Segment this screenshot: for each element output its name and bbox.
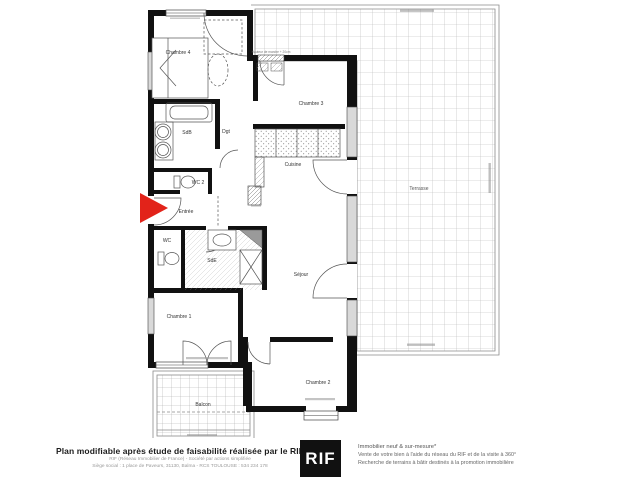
footer-company-line: RIF (Réseau Immobilier de France) - Soci… <box>30 457 330 463</box>
footer-left-block: Plan modifiable après étude de faisabili… <box>30 446 330 470</box>
room-label-chambre2: Chambre 2 <box>306 380 331 386</box>
room-label-sejour: Séjour <box>294 272 309 278</box>
room-label-sde: SdE <box>207 258 217 264</box>
rif-logo-text: RIF <box>305 449 335 469</box>
footer-service-line1: Immobilier neuf & sur-mesure* <box>358 443 588 451</box>
room-label-entree: Entrée <box>179 209 194 215</box>
room-label-cuisine: Cuisine <box>285 162 302 168</box>
room-label-wc: WC <box>163 238 172 244</box>
room-label-chambre4: Chambre 4 <box>166 50 191 56</box>
room-label-sdb: SdB <box>182 130 192 136</box>
balcony-dimension-smudge <box>187 434 217 436</box>
footer: Plan modifiable après étude de faisabili… <box>0 438 640 480</box>
room-label-chambre3: Chambre 3 <box>299 101 324 107</box>
footer-tagline: Plan modifiable après étude de faisabili… <box>30 446 330 456</box>
step-height-note: Hauteur de marche + 20cm <box>252 50 291 54</box>
footer-address-line: Siège social : 1 place de Paveurs, 31130… <box>30 464 330 470</box>
room-label-wc2: WC 2 <box>192 180 205 186</box>
floor-plan: Terrasse Balcon <box>0 0 640 440</box>
footer-service-line2: Vente de votre bien à l'aide du réseau d… <box>358 451 588 459</box>
footer-right-block: Immobilier neuf & sur-mesure* Vente de v… <box>358 443 588 467</box>
rif-logo: RIF <box>300 440 341 477</box>
footer-service-line3: Recherche de terrains à bâtir destinés à… <box>358 459 588 467</box>
room-label-balcon: Balcon <box>195 402 211 408</box>
room-label-chambre1: Chambre 1 <box>167 314 192 320</box>
room-label-dgt: Dgt <box>222 129 230 135</box>
balcony: Balcon <box>153 371 254 440</box>
room-label-terrasse: Terrasse <box>409 186 428 192</box>
